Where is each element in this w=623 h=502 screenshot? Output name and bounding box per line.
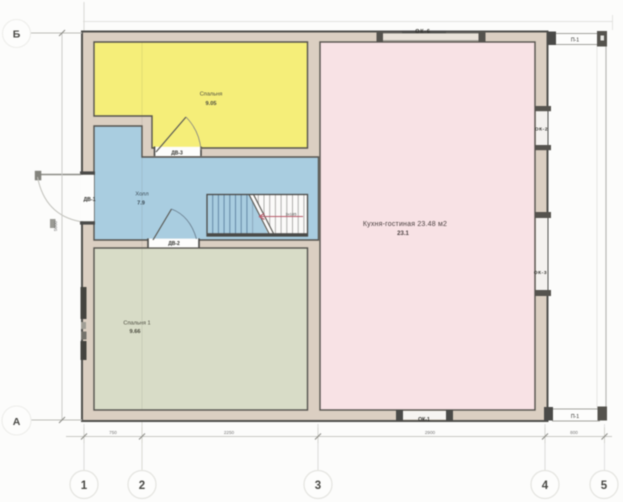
svg-text:П-1: П-1 [571,414,579,420]
svg-text:Спальня: Спальня [200,92,222,98]
svg-text:7.9: 7.9 [137,201,145,207]
svg-text:4: 4 [542,480,549,492]
svg-text:9.66: 9.66 [130,329,141,335]
svg-text:ОК-1: ОК-1 [418,417,430,423]
svg-text:3: 3 [315,480,321,492]
svg-text:800: 800 [570,430,578,435]
svg-text:Б: Б [13,29,21,41]
svg-text:П-1: П-1 [571,38,579,44]
svg-text:1: 1 [81,480,88,492]
svg-text:9.05: 9.05 [206,101,217,107]
svg-text:ОК-3: ОК-3 [534,270,547,276]
svg-text:2250: 2250 [224,430,235,435]
svg-text:Кухня-гостиная 23.48 м2: Кухня-гостиная 23.48 м2 [363,221,447,228]
svg-text:ДВ-2: ДВ-2 [168,241,180,247]
svg-text:ДВ-3: ДВ-3 [171,151,183,157]
svg-text:5000: 5000 [53,220,58,231]
svg-text:750: 750 [109,430,117,435]
svg-text:Спальня 1: Спальня 1 [123,321,150,327]
svg-text:А: А [13,416,21,428]
svg-text:3х185: 3х185 [286,212,298,217]
svg-text:5: 5 [601,480,608,492]
svg-text:2: 2 [139,480,145,492]
svg-text:23.1: 23.1 [397,231,409,237]
svg-text:ОК-6: ОК-6 [415,29,430,35]
svg-text:ДВ-1: ДВ-1 [83,197,95,203]
svg-text:2900: 2900 [425,430,436,435]
svg-text:ОК-2: ОК-2 [535,127,548,133]
